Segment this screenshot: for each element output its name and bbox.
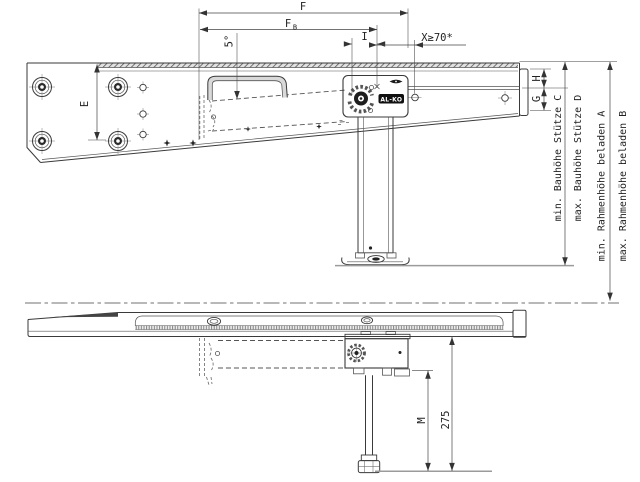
frame-end-cap-lower bbox=[513, 310, 526, 337]
dim-H: H bbox=[531, 75, 543, 81]
drawing-canvas: AL-KO F F bbox=[0, 0, 640, 482]
dim-rahmenhoehe-min: min. Rahmenhöhe beladen A bbox=[597, 111, 608, 262]
lower-view-frame bbox=[25, 303, 619, 473]
dim-rahmenhoehe-max: max. Rahmenhöhe beladen B bbox=[618, 111, 629, 262]
crank-handle-stowed bbox=[208, 76, 287, 100]
frame-end-cap bbox=[520, 69, 529, 116]
dim-M: M bbox=[416, 417, 428, 423]
lower-dimensions: M 275 bbox=[411, 337, 459, 471]
bolt bbox=[29, 74, 55, 100]
frame-seal-hatch bbox=[135, 326, 503, 330]
jack-housing: AL-KO bbox=[338, 76, 422, 125]
dim-X: X≥70* bbox=[421, 32, 453, 44]
upper-view-frame: AL-KO bbox=[27, 63, 574, 266]
alko-logo-text: AL-KO bbox=[380, 96, 402, 103]
dim-FB: F bbox=[285, 18, 291, 30]
frame-slots bbox=[207, 317, 372, 325]
swivel-bracket-hidden bbox=[200, 338, 345, 385]
dim-275: 275 bbox=[440, 411, 452, 430]
technical-drawing: AL-KO F F bbox=[0, 0, 640, 482]
crank-rod bbox=[358, 375, 379, 472]
dim-I: I bbox=[361, 31, 367, 43]
dim-FB-sub: B bbox=[293, 24, 297, 32]
dim-G: G bbox=[531, 96, 543, 102]
support-leg-extended bbox=[342, 117, 410, 265]
dim-E: E bbox=[79, 101, 91, 107]
mounting-bolts bbox=[29, 74, 131, 154]
jack-housing-lower bbox=[345, 332, 410, 376]
bolt bbox=[29, 128, 55, 154]
housing-hole bbox=[409, 94, 422, 101]
dim-angle: 5° bbox=[224, 35, 236, 48]
frame-top-flange-hatch bbox=[97, 64, 518, 68]
bolt bbox=[105, 128, 131, 154]
dim-bauhoehe-max: max. Bauhöhe Stütze D bbox=[573, 95, 584, 221]
dim-F: F bbox=[300, 1, 306, 13]
frame-holes bbox=[137, 82, 512, 141]
dim-bauhoehe-min: min. Bauhöhe Stütze C bbox=[553, 95, 564, 221]
bolt bbox=[105, 74, 131, 100]
